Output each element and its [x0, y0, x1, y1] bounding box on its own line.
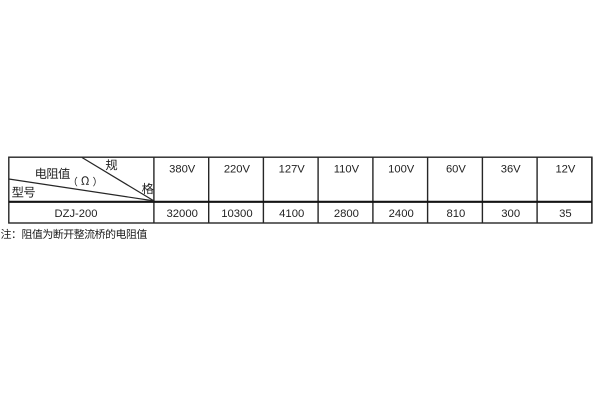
svg-text:60V: 60V: [446, 164, 466, 176]
svg-text:4100: 4100: [279, 208, 304, 220]
svg-text:300: 300: [501, 208, 520, 220]
svg-text:12V: 12V: [555, 164, 575, 176]
svg-text:DZJ-200: DZJ-200: [55, 208, 98, 220]
svg-text:100V: 100V: [388, 164, 415, 176]
svg-text:32000: 32000: [166, 208, 197, 220]
svg-text:10300: 10300: [221, 208, 252, 220]
svg-text:127V: 127V: [279, 164, 306, 176]
svg-text:2800: 2800: [334, 208, 359, 220]
svg-text:380V: 380V: [169, 164, 196, 176]
svg-text:220V: 220V: [224, 164, 251, 176]
svg-text:110V: 110V: [334, 164, 360, 176]
svg-text:2400: 2400: [389, 208, 414, 220]
svg-text:36V: 36V: [501, 164, 521, 176]
svg-text:810: 810: [446, 208, 465, 220]
svg-text:35: 35: [559, 208, 572, 220]
